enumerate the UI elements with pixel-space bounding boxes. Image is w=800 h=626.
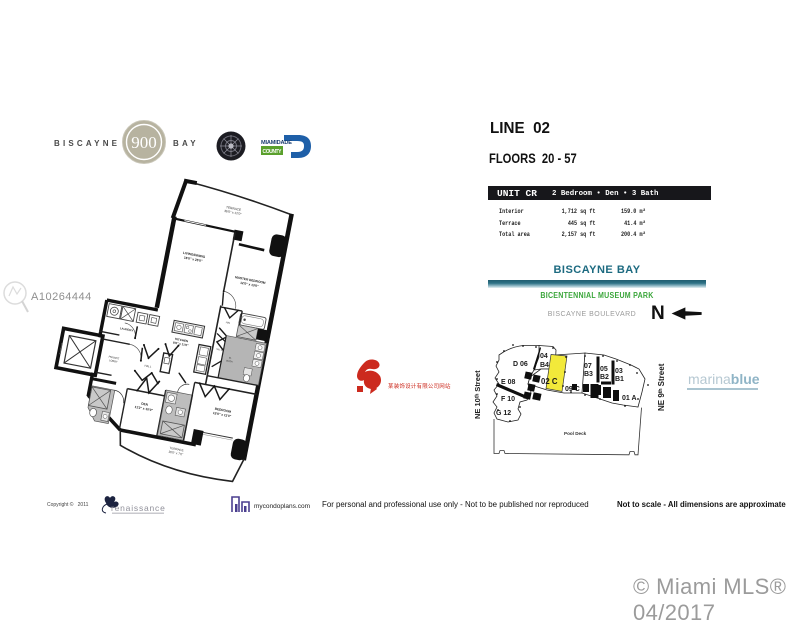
svg-text:E 08: E 08 bbox=[501, 379, 516, 386]
svg-text:HIS: HIS bbox=[225, 320, 230, 325]
svg-text:B1: B1 bbox=[615, 376, 624, 383]
svg-text:05: 05 bbox=[600, 366, 608, 373]
svg-text:F 10: F 10 bbox=[501, 396, 515, 403]
svg-text:B2: B2 bbox=[600, 374, 609, 381]
svg-text:Pool Deck: Pool Deck bbox=[564, 431, 587, 436]
svg-text:04: 04 bbox=[540, 353, 548, 360]
svg-text:renaissance: renaissance bbox=[111, 503, 166, 513]
svg-text:NE 10ᵗʰ Street: NE 10ᵗʰ Street bbox=[473, 370, 482, 419]
svg-text:11'2" x 10'0": 11'2" x 10'0" bbox=[134, 405, 153, 413]
svg-text:某装饰设计有限公司网站: 某装饰设计有限公司网站 bbox=[388, 382, 451, 390]
svg-text:HALL: HALL bbox=[144, 364, 152, 369]
svg-text:LAUNDRY: LAUNDRY bbox=[120, 326, 134, 333]
svg-text:B3: B3 bbox=[584, 371, 593, 378]
svg-text:D 06: D 06 bbox=[513, 361, 528, 368]
svg-text:NE 9ᵗʰ Street: NE 9ᵗʰ Street bbox=[657, 363, 666, 411]
svg-text:02 C: 02 C bbox=[541, 377, 558, 386]
svg-text:03: 03 bbox=[615, 368, 623, 375]
svg-text:B4: B4 bbox=[540, 362, 549, 369]
svg-text:07: 07 bbox=[584, 363, 592, 370]
svg-text:G 12: G 12 bbox=[496, 410, 511, 417]
svg-text:01 A: 01 A bbox=[622, 395, 637, 402]
svg-text:09 C: 09 C bbox=[565, 386, 580, 393]
